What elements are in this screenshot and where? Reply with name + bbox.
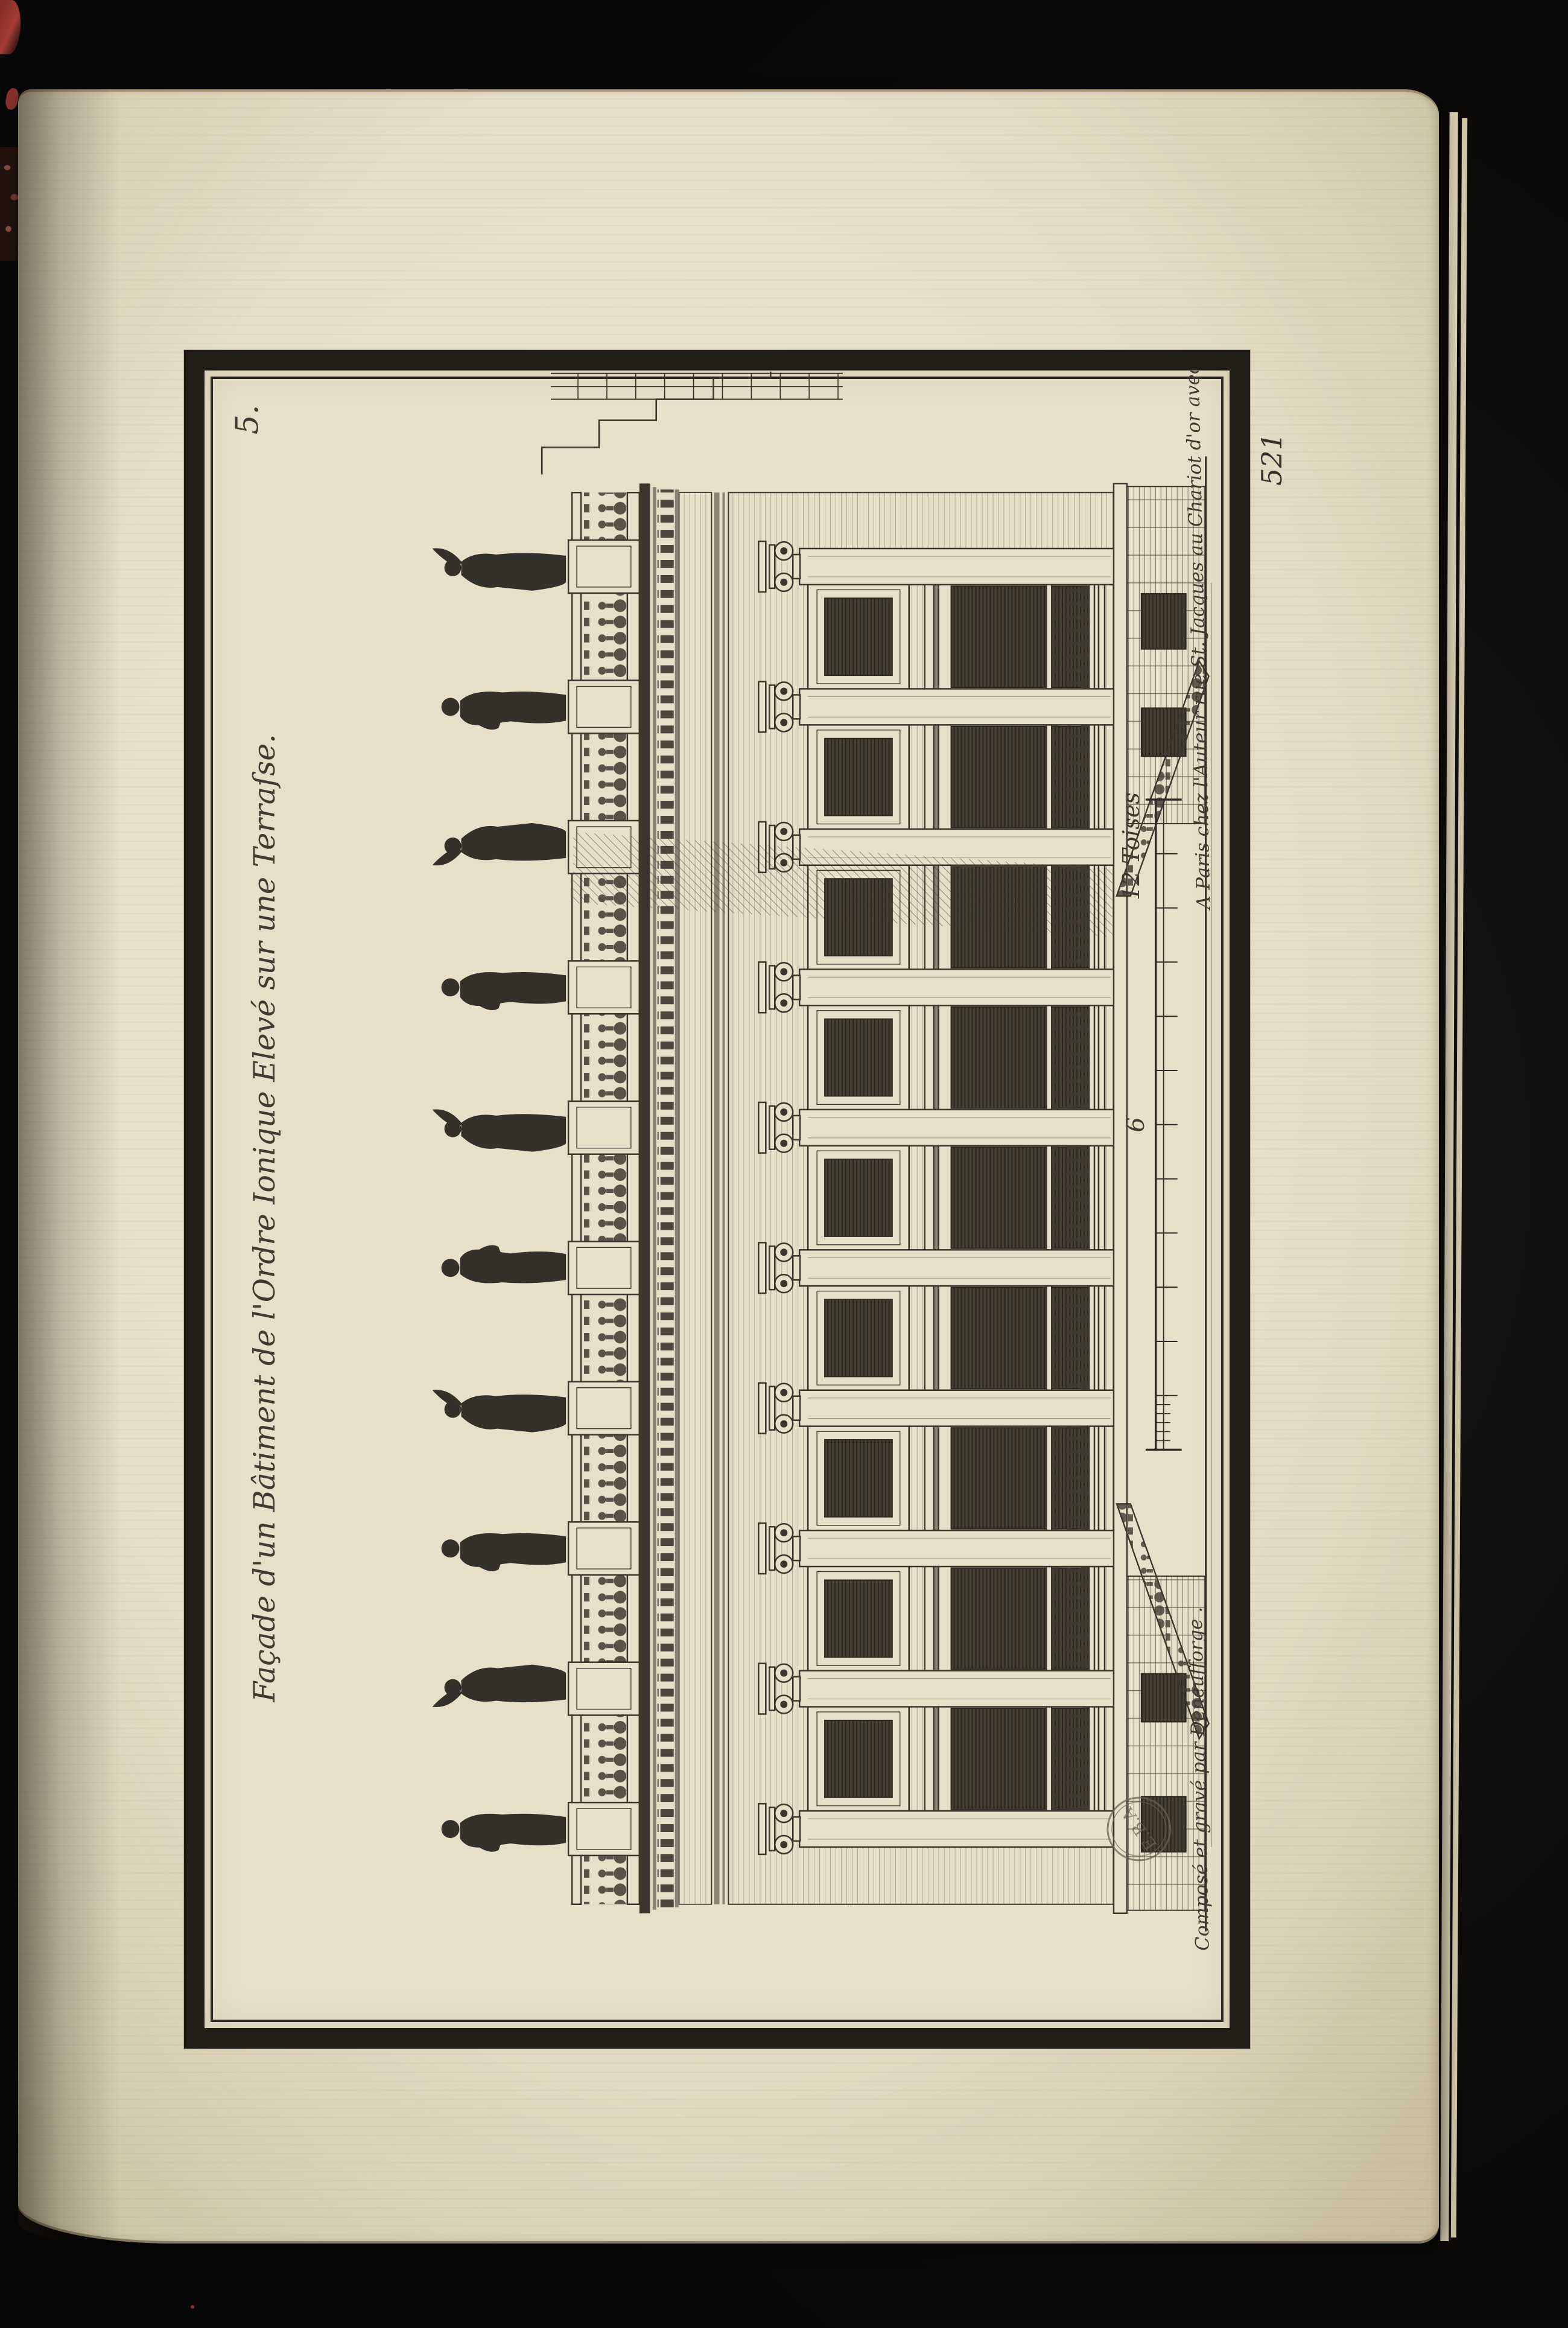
capital-abacus — [758, 1804, 766, 1854]
balcony-balusters — [1052, 714, 1089, 839]
statue — [441, 1813, 566, 1851]
attic-window — [825, 738, 892, 815]
pedestal — [568, 680, 640, 733]
statue — [441, 972, 566, 1010]
window-sill — [1099, 986, 1105, 1128]
attic-window — [825, 598, 892, 675]
balcony-balusters — [1052, 1556, 1089, 1681]
pedestal — [568, 1381, 640, 1434]
balcony-balusters — [1052, 1696, 1089, 1822]
statue — [432, 548, 565, 590]
statue-row — [432, 548, 565, 1851]
pilaster — [758, 1382, 1115, 1433]
pilaster — [758, 681, 1115, 732]
capital-abacus — [758, 1382, 766, 1433]
attic-window — [825, 1299, 892, 1376]
attic-window — [825, 1720, 892, 1797]
dentil-course — [657, 489, 673, 1907]
plate-number: 5. — [229, 404, 265, 434]
balcony-balusters — [1052, 574, 1089, 699]
balcony-rail — [1046, 1130, 1052, 1265]
pilaster — [758, 1523, 1115, 1574]
binding-gutter-shadow — [18, 89, 121, 2244]
pedestal — [568, 540, 640, 593]
statue — [432, 1664, 565, 1706]
frieze — [679, 492, 711, 1904]
window-sill — [1099, 1407, 1105, 1549]
capital-abacus — [758, 1102, 766, 1153]
balcony-balusters — [1052, 994, 1089, 1120]
pilaster — [758, 962, 1115, 1013]
balcony-balusters — [1052, 1416, 1089, 1541]
pedestal — [568, 1662, 640, 1715]
scale-mid-label: 6 — [1122, 1117, 1149, 1132]
balcony-rail — [1046, 1270, 1052, 1405]
scanned-book-spread: { "document": { "kind": "Engraved archit… — [0, 0, 1568, 2328]
pedestal — [568, 1802, 640, 1856]
balcony-rail — [1046, 1411, 1052, 1545]
balcony-balusters — [1052, 1275, 1089, 1401]
pilaster — [758, 1102, 1115, 1153]
book-page: Façade d'un Bâtiment de l'Ordre Ionique … — [18, 89, 1439, 2244]
engraved-plate: Façade d'un Bâtiment de l'Ordre Ionique … — [184, 350, 1250, 2049]
window-sill — [1099, 1267, 1105, 1408]
entablature — [639, 483, 725, 1913]
statue — [432, 1109, 565, 1151]
pilaster — [758, 1242, 1115, 1293]
balcony-rail — [1046, 1551, 1052, 1685]
attic-window — [825, 1019, 892, 1096]
balcony-rail — [1046, 569, 1052, 704]
balcony-rail — [1046, 709, 1052, 844]
statue — [441, 1533, 566, 1571]
window-sill — [1099, 1547, 1105, 1689]
scale-end-label: 12 Toises — [1117, 792, 1144, 900]
capital-abacus — [758, 1663, 766, 1714]
window-bays — [808, 562, 1105, 1833]
attic-window — [825, 1580, 892, 1657]
capital-abacus — [758, 1523, 766, 1574]
window-sill — [1099, 565, 1105, 707]
attic-window — [825, 1440, 892, 1517]
facade-engraving: Façade d'un Bâtiment de l'Ordre Ionique … — [205, 371, 1230, 2028]
balcony-balusters — [1052, 1135, 1089, 1261]
red-ink-fleck — [191, 2305, 194, 2309]
pedestal — [568, 1522, 640, 1575]
pedestal — [568, 1101, 640, 1154]
window-sill — [1099, 1127, 1105, 1268]
red-crayon-mark — [0, 0, 21, 54]
pilaster — [758, 541, 1115, 592]
pedestal — [568, 961, 640, 1014]
plate-title: Façade d'un Bâtiment de l'Ordre Ionique … — [247, 734, 282, 1702]
toise-scale-bar — [1145, 800, 1181, 1449]
statue — [432, 822, 565, 865]
terrace-section-steps — [542, 371, 843, 474]
capital-abacus — [758, 962, 766, 1013]
capital-abacus — [758, 1242, 766, 1293]
statue — [441, 692, 566, 730]
balcony-rail — [1046, 1691, 1052, 1826]
statue — [432, 1390, 565, 1432]
pilaster — [758, 1663, 1115, 1714]
statue — [441, 1245, 566, 1283]
capital-abacus — [758, 541, 766, 592]
attic-window — [825, 1159, 892, 1236]
capital-abacus — [758, 681, 766, 732]
window-sill — [1099, 1688, 1105, 1830]
book-page-number: 521 — [1255, 429, 1298, 489]
pedestal — [568, 1241, 640, 1294]
balcony-rail — [1046, 990, 1052, 1124]
pilaster — [758, 1804, 1115, 1854]
rotated-plate-content: Façade d'un Bâtiment de l'Ordre Ionique … — [205, 371, 1230, 2028]
basement-window — [1141, 593, 1186, 649]
window-sill — [1099, 705, 1105, 847]
